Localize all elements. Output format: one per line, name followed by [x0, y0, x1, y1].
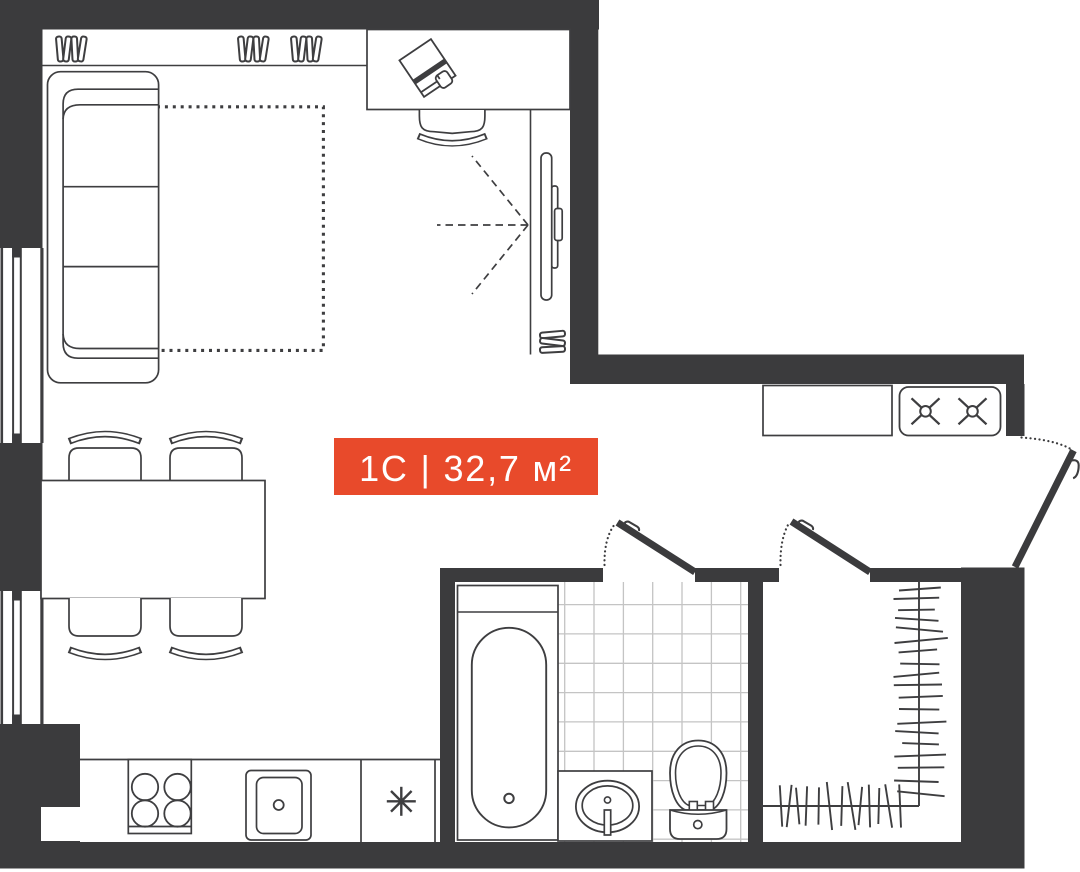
svg-text:1С | 32,7 м²: 1С | 32,7 м²: [359, 448, 573, 489]
